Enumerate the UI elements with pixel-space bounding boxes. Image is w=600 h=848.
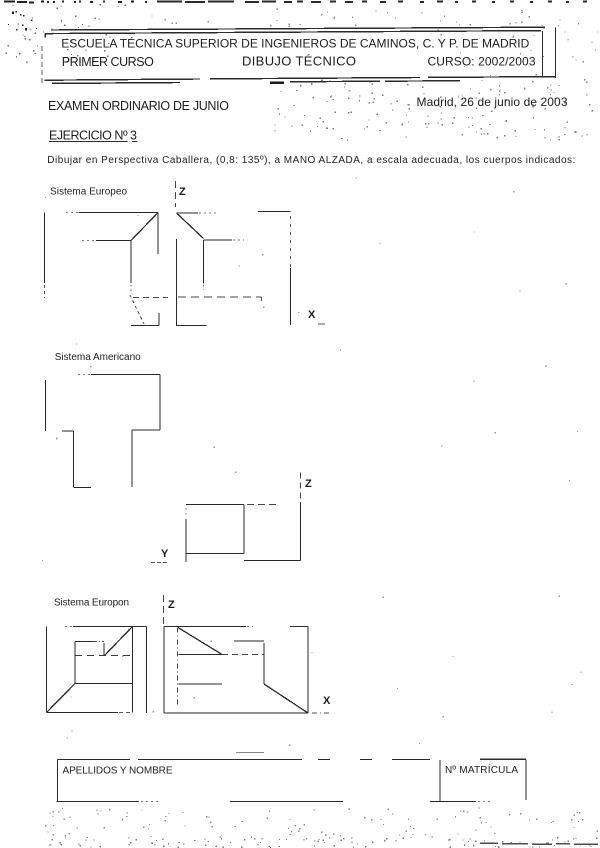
svg-text:APELLIDOS Y NOMBRE: APELLIDOS Y NOMBRE: [63, 766, 173, 777]
svg-text:CURSO: 2002/2003: CURSO: 2002/2003: [428, 55, 536, 69]
svg-text:EXAMEN ORDINARIO DE JUNIO: EXAMEN ORDINARIO DE JUNIO: [48, 99, 229, 113]
svg-text:Dibujar en Perspectiva Caballe: Dibujar en Perspectiva Caballera, (0,8: …: [47, 155, 575, 166]
svg-text:PRIMER CURSO: PRIMER CURSO: [62, 55, 154, 69]
svg-text:X: X: [308, 309, 316, 321]
svg-text:Sistema Europeo: Sistema Europeo: [50, 187, 127, 198]
svg-text:X: X: [323, 695, 331, 707]
svg-text:Nº MATRÍCULA: Nº MATRÍCULA: [445, 763, 518, 776]
svg-text:Sistema Europon: Sistema Europon: [54, 598, 129, 609]
svg-text:Z: Z: [168, 599, 175, 611]
svg-text:Sistema Americano: Sistema Americano: [55, 352, 141, 363]
svg-text:Z: Z: [305, 478, 312, 490]
svg-text:DIBUJO TÉCNICO: DIBUJO TÉCNICO: [242, 54, 356, 69]
svg-text:EJERCICIO Nº 3: EJERCICIO Nº 3: [49, 129, 137, 143]
svg-text:Madrid, 26 de junio de 2003: Madrid, 26 de junio de 2003: [417, 95, 568, 109]
svg-text:Z: Z: [179, 186, 186, 198]
svg-text:ESCUELA TÉCNICA SUPERIOR DE IN: ESCUELA TÉCNICA SUPERIOR DE INGENIEROS D…: [61, 36, 529, 51]
svg-text:Y: Y: [161, 548, 169, 560]
